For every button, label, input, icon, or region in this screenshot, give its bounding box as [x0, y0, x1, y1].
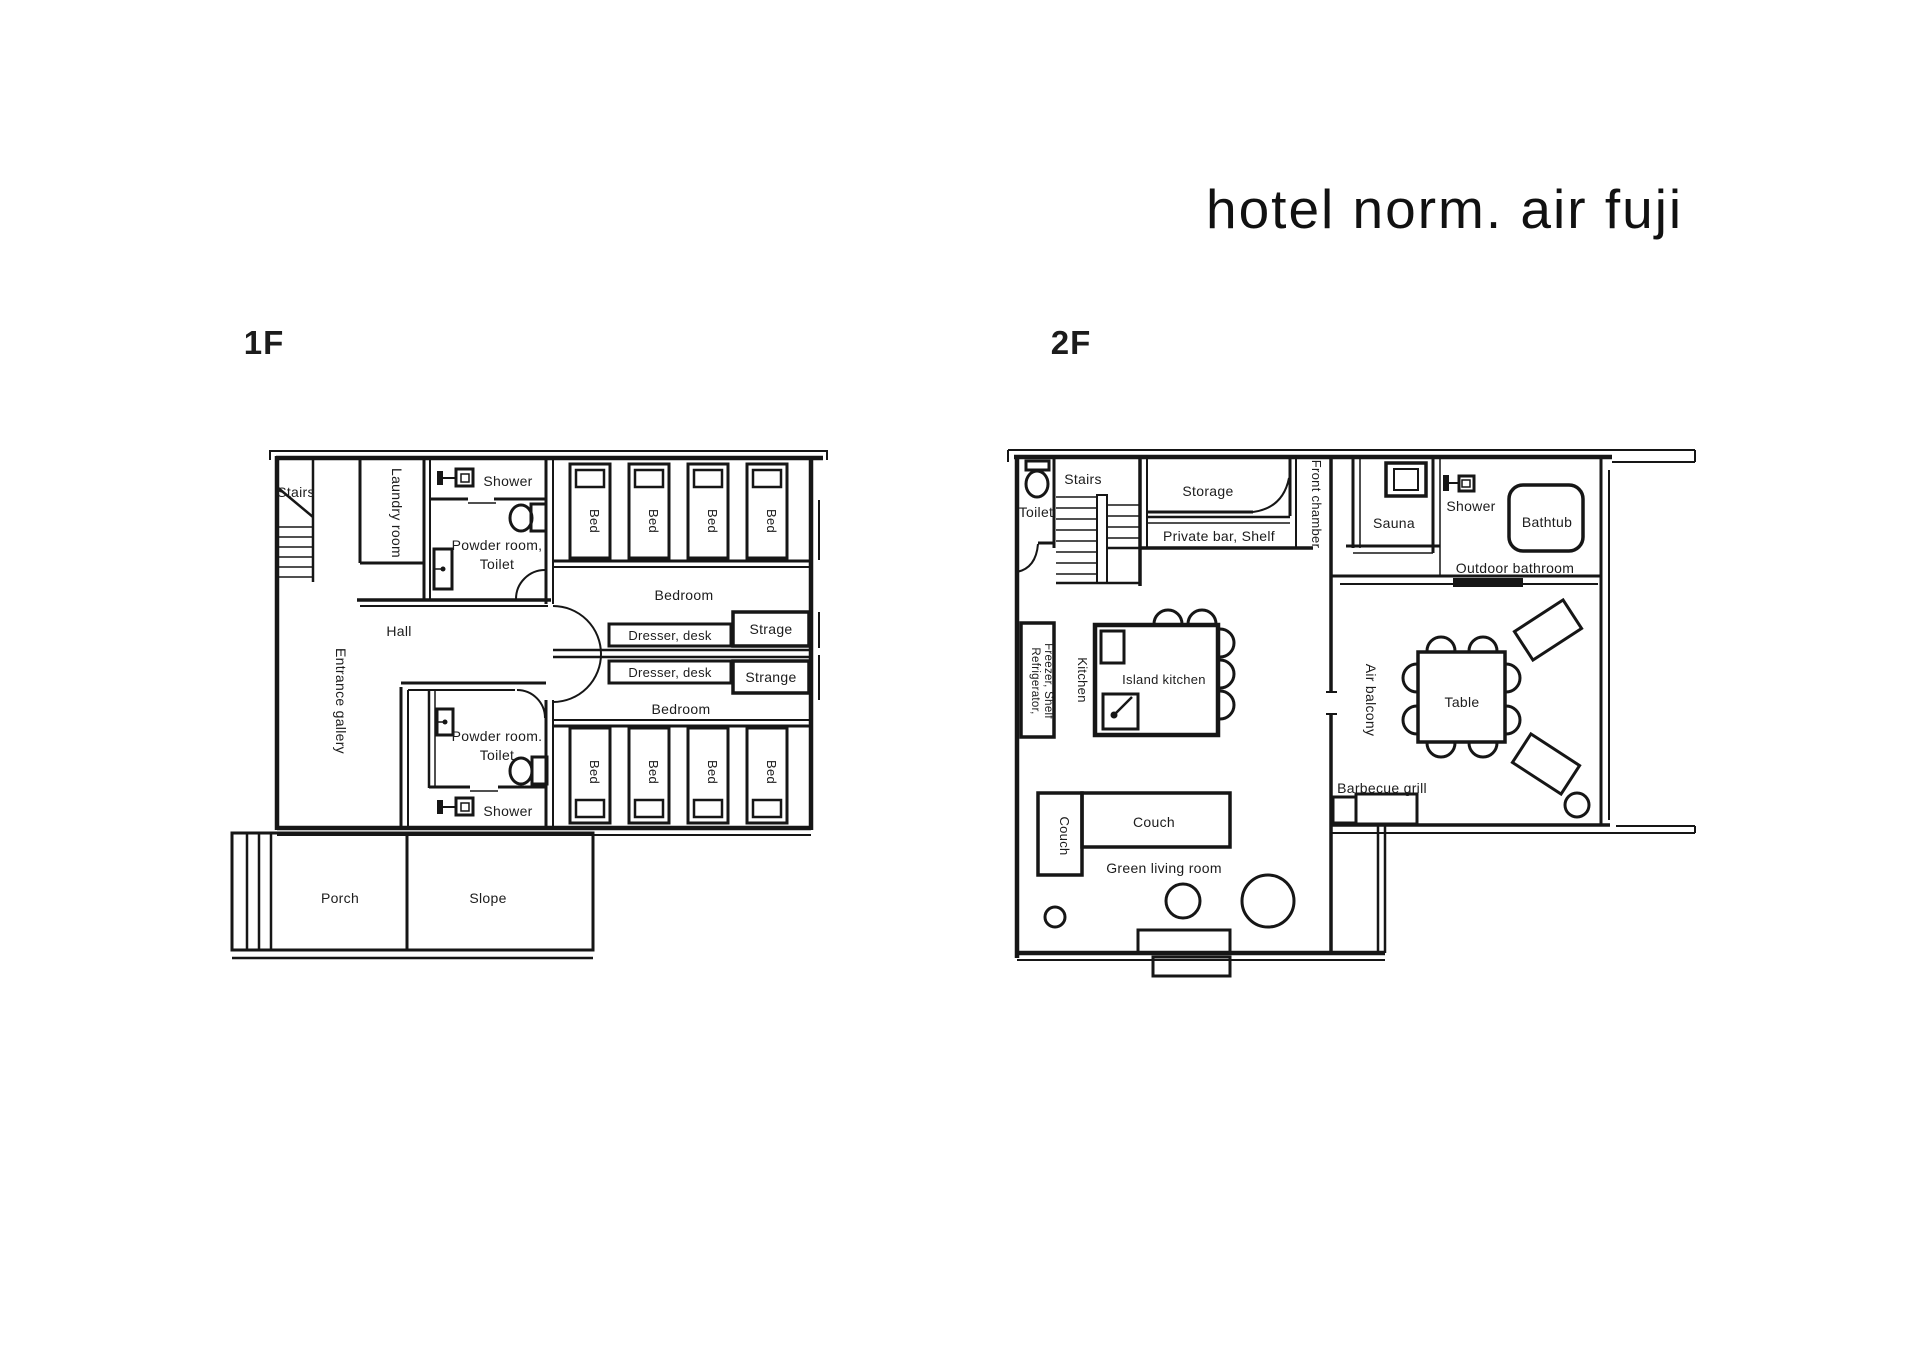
label-refrigerator-1: Refrigerator, — [1029, 647, 1041, 714]
barbecue-grill-icon — [1333, 797, 1356, 823]
label-bed: Bed — [764, 760, 779, 784]
label-bed: Bed — [764, 509, 779, 533]
floor1-label: 1F — [244, 324, 285, 361]
floor-plan-page: hotel norm. air fuji 1F 2F — [0, 0, 1916, 1355]
label-bed: Bed — [646, 509, 661, 533]
floor2-label: 2F — [1051, 324, 1092, 361]
toilet-icon-bottom — [510, 757, 547, 784]
label-dresser-desk-2: Dresser, desk — [628, 665, 712, 680]
label-green-living-room: Green living room — [1106, 860, 1222, 876]
door-arc — [517, 690, 545, 718]
label-private-bar: Private bar, Shelf — [1163, 528, 1275, 544]
label-bed: Bed — [705, 509, 720, 533]
barbecue-grill-icon — [1356, 794, 1417, 824]
label-storage: Storage — [1182, 483, 1233, 499]
label-table: Table — [1445, 694, 1480, 710]
floor1-walls — [270, 450, 828, 835]
side-table — [1565, 793, 1589, 817]
porch-slope — [232, 833, 593, 958]
floor-plan-canvas: hotel norm. air fuji 1F 2F — [0, 0, 1916, 1355]
label-kitchen: Kitchen — [1075, 657, 1090, 702]
stairs-1f — [277, 458, 313, 582]
plant-pot — [1166, 884, 1200, 918]
label-toilet-2f: Toilet — [1019, 504, 1053, 520]
label-stairs-1f: Stairs — [277, 484, 315, 500]
plant-pot — [1045, 907, 1065, 927]
label-dresser-desk-1: Dresser, desk — [628, 628, 712, 643]
label-bedroom-top: Bedroom — [655, 587, 714, 603]
label-shower-2f: Shower — [1446, 498, 1495, 514]
lounge-chair — [1512, 734, 1579, 794]
door-arc — [1253, 478, 1289, 512]
label-refrigerator-2: Freezer, Shelf — [1042, 643, 1054, 719]
planter-box — [1138, 930, 1230, 953]
door-arc — [516, 570, 545, 599]
label-shower-bottom: Shower — [483, 803, 532, 819]
label-outdoor-bathroom: Outdoor bathroom — [1456, 560, 1574, 576]
label-powder-room-top: Powder room, — [452, 537, 543, 553]
sink-icon-2f — [1101, 631, 1124, 663]
label-porch: Porch — [321, 890, 359, 906]
stove-icon — [1103, 694, 1138, 729]
label-island-kitchen: Island kitchen — [1122, 672, 1206, 687]
door-arc — [1017, 544, 1038, 572]
label-slope: Slope — [469, 890, 506, 906]
label-couch-horizontal: Couch — [1133, 814, 1175, 830]
shower-icon-top — [437, 469, 473, 486]
label-bed: Bed — [646, 760, 661, 784]
floor2-plan: Toilet Stairs — [1008, 450, 1695, 976]
shower-icon-bottom — [437, 798, 473, 815]
label-bathtub: Bathtub — [1522, 514, 1572, 530]
label-toilet-top: Toilet — [480, 556, 514, 572]
floor1-plan: Stairs Laundry room Shower — [232, 450, 828, 958]
label-barbecue-grill: Barbecue grill — [1337, 780, 1427, 796]
label-shower-top: Shower — [483, 473, 532, 489]
label-strage: Strage — [749, 621, 792, 637]
label-bed: Bed — [587, 760, 602, 784]
toilet-icon-top — [510, 504, 546, 531]
label-couch-vertical: Couch — [1057, 816, 1072, 855]
page-title: hotel norm. air fuji — [1206, 178, 1683, 240]
label-entrance-gallery: Entrance gallery — [333, 648, 349, 754]
shower-icon-2f — [1443, 475, 1474, 491]
label-front-chamber: Front chamber — [1309, 460, 1324, 549]
label-bed: Bed — [587, 509, 602, 533]
sauna-stove-icon — [1386, 463, 1426, 496]
label-strange: Strange — [745, 669, 796, 685]
label-bedroom-bottom: Bedroom — [652, 701, 711, 717]
label-powder-room-bottom: Powder room. — [452, 728, 543, 744]
label-hall: Hall — [386, 623, 411, 639]
label-sauna: Sauna — [1373, 515, 1415, 531]
label-stairs-2f: Stairs — [1064, 471, 1102, 487]
label-laundry-room: Laundry room — [389, 468, 405, 558]
plant-pot — [1242, 875, 1294, 927]
label-toilet-bottom: Toilet — [480, 747, 514, 763]
label-bed: Bed — [705, 760, 720, 784]
toilet-icon-2f — [1026, 461, 1049, 497]
lounge-chair — [1514, 600, 1581, 660]
label-air-balcony: Air balcony — [1363, 664, 1379, 737]
sink-icon-bottom — [437, 709, 453, 735]
sink-icon-top — [434, 549, 452, 589]
